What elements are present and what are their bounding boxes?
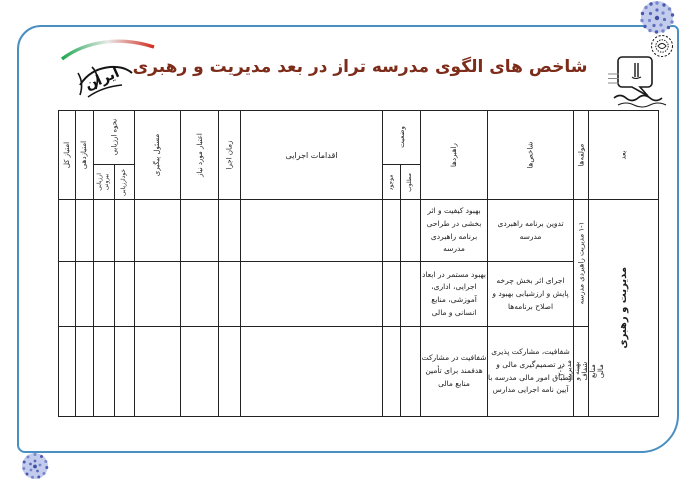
cell-indicator-1: تدوین برنامه راهبردی مدرسه: [488, 200, 574, 262]
empty-cell: [115, 327, 135, 417]
header-status-existing: موجود: [383, 165, 401, 200]
empty-cell: [219, 262, 241, 327]
empty-cell: [94, 200, 115, 262]
header-evaluation: نحوه ارزیابی: [94, 111, 135, 165]
header-status-desired: مطلوب: [401, 165, 421, 200]
empty-cell: [219, 200, 241, 262]
empty-cell: [401, 327, 421, 417]
header-indicators: شاخص‌ها: [488, 111, 574, 200]
header-strategies: راهبردها: [421, 111, 488, 200]
header-total-score: امتیاز کل: [59, 111, 76, 200]
empty-cell: [135, 200, 181, 262]
empty-cell: [94, 327, 115, 417]
cell-strategy-2: بهبود مستمر در ابعاد اجرایی، اداری، آموز…: [421, 262, 488, 327]
empty-cell: [59, 200, 76, 262]
empty-cell: [76, 200, 94, 262]
ministry-of-education-logo: [606, 32, 680, 110]
header-responsible: مسئول پیگیری: [135, 111, 181, 200]
header-self-evaluation: خودارزیابی: [115, 165, 135, 200]
header-components: مولفه‌ها: [574, 111, 589, 200]
empty-cell: [383, 327, 401, 417]
empty-cell: [383, 262, 401, 327]
empty-cell: [59, 262, 76, 327]
cell-strategy-3: شفافیت در مشارکت هدفمند برای تأمین منابع…: [421, 327, 488, 417]
header-external-evaluation: ارزیابی بیرونی: [94, 165, 115, 200]
cell-component-2: ۲-۱ مدیریت بهینه و شفاف منابع مالی: [574, 327, 589, 417]
empty-cell: [383, 200, 401, 262]
page-title: شاخص های الگوی مدرسه تراز در بعد مدیریت …: [120, 57, 600, 77]
header-actions: اقدامات اجرایی: [241, 111, 383, 200]
empty-cell: [115, 200, 135, 262]
cell-indicator-2: اجرای اثر بخش چرخه پایش و ارزشیابی بهبود…: [488, 262, 574, 327]
header-budget: اعتبار مورد نیاز: [181, 111, 219, 200]
cell-strategy-1: بهبود کیفیت و اثر بخشی در طراحی برنامه ر…: [421, 200, 488, 262]
empty-cell: [219, 327, 241, 417]
empty-cell: [76, 327, 94, 417]
empty-cell: [401, 262, 421, 327]
document-page: ایران شاخص های الگوی مدرسه تراز در بعد م…: [0, 0, 700, 485]
header-scoring: امتیازدهی: [76, 111, 94, 200]
empty-cell: [115, 262, 135, 327]
empty-cell: [241, 262, 383, 327]
empty-cell: [241, 327, 383, 417]
header-status: وضعیت: [383, 111, 421, 165]
empty-cell: [241, 200, 383, 262]
indicators-table: بعد مولفه‌ها شاخص‌ها راهبردها وضعیت اقدا…: [58, 110, 659, 417]
empty-cell: [181, 262, 219, 327]
empty-cell: [401, 200, 421, 262]
empty-cell: [76, 262, 94, 327]
empty-cell: [135, 262, 181, 327]
cell-dimension: مدیریت و رهبری: [589, 200, 659, 417]
empty-cell: [59, 327, 76, 417]
header-time: زمان اجرا: [219, 111, 241, 200]
empty-cell: [135, 327, 181, 417]
empty-cell: [181, 327, 219, 417]
paisley-ornament-bottom-left-icon: [19, 450, 52, 482]
empty-cell: [94, 262, 115, 327]
empty-cell: [181, 200, 219, 262]
cell-component-1: ۱-۱ مدیریت راهبردی مدرسه: [574, 200, 589, 327]
header-dimension: بعد: [589, 111, 659, 200]
